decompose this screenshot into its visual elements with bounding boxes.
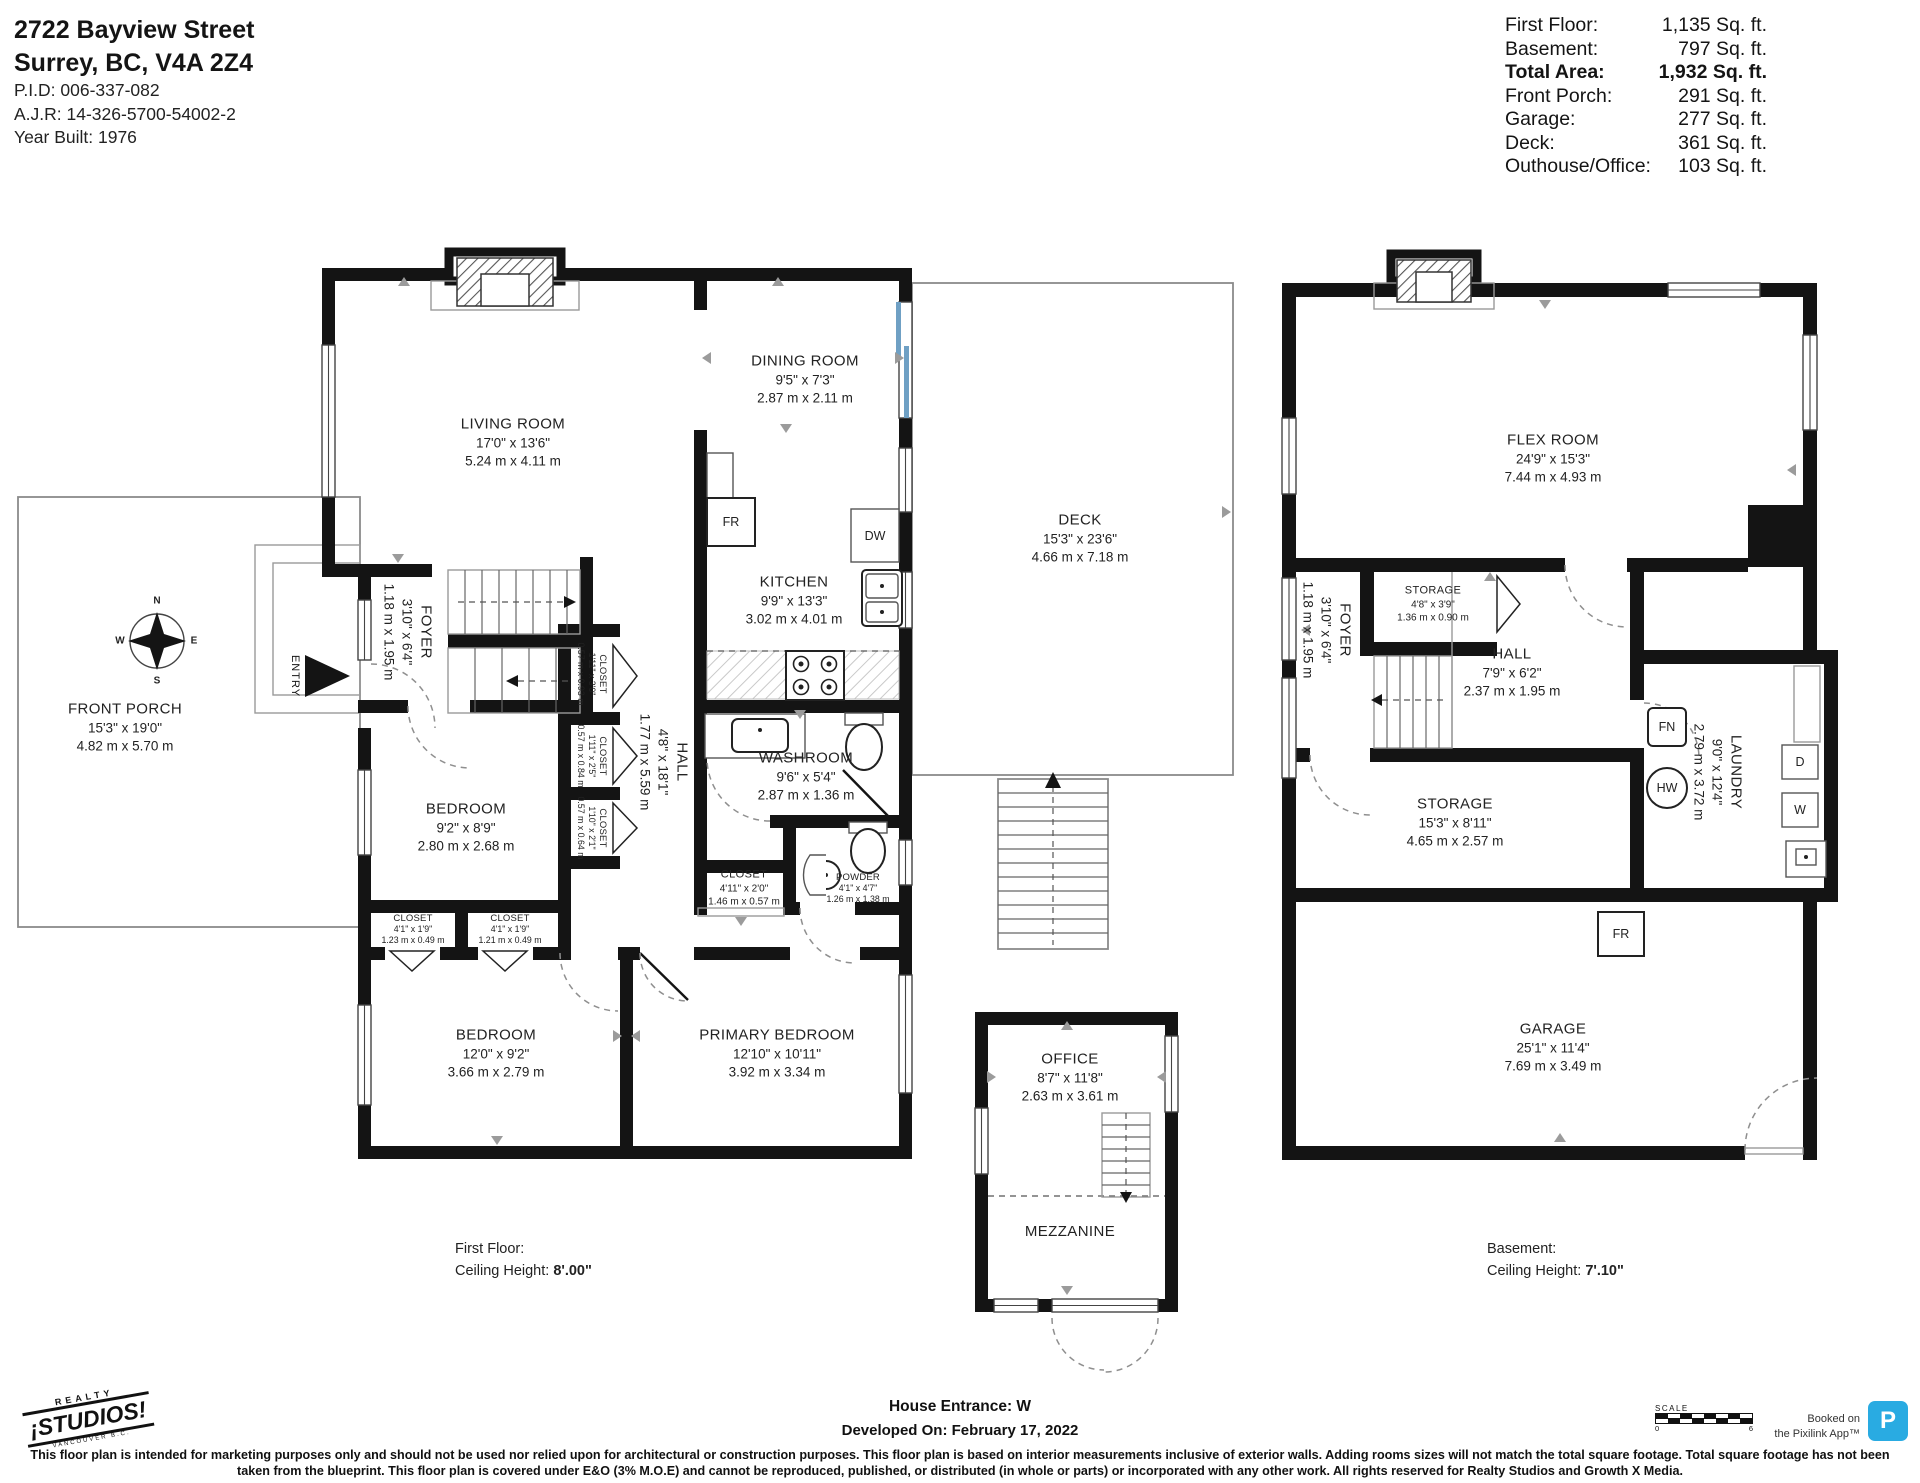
washer-label: W <box>1794 803 1806 817</box>
deck-outline <box>912 283 1233 949</box>
room-label-basement-foyer: FOYER 3'10" x 6'4" 1.18 m x 1.95 m <box>1299 582 1354 679</box>
header: 2722 Bayview Street Surrey, BC, V4A 2Z4 … <box>14 14 254 150</box>
year-built: Year Built: 1976 <box>14 126 254 150</box>
compass-s: S <box>154 676 161 687</box>
first-floor-note: First Floor: Ceiling Height: 8'.00" <box>455 1238 592 1283</box>
room-label-closet-e: CLOSET 4'1" x 1'9" 1.23 m x 0.49 m <box>381 913 444 945</box>
hot-water-label: HW <box>1657 781 1678 795</box>
area-row: Front Porch:291 Sq. ft. <box>1505 85 1767 109</box>
room-label-living-room: LIVING ROOM 17'0" x 13'6" 5.24 m x 4.11 … <box>461 414 565 469</box>
basement-note: Basement: Ceiling Height: 7'.10" <box>1487 1238 1624 1283</box>
ajr: A.J.R: 14-326-5700-54002-2 <box>14 103 254 127</box>
room-label-office: OFFICE 8'7" x 11'8" 2.63 m x 3.61 m <box>1022 1049 1119 1104</box>
room-label-bedroom2: BEDROOM 12'0" x 9'2" 3.66 m x 2.79 m <box>448 1025 545 1080</box>
pid: P.I.D: 006-337-082 <box>14 79 254 103</box>
floor-plan-drawing <box>0 0 1920 1483</box>
compass-icon <box>128 612 186 670</box>
room-label-primary-bedroom: PRIMARY BEDROOM 12'10" x 10'11" 3.92 m x… <box>699 1025 854 1080</box>
room-label-closet-c: CLOSET 1'10" x 2'1" 0.57 m x 0.64 m <box>576 796 608 859</box>
scale-bar: SCALE 0 6 <box>1655 1404 1755 1433</box>
bathroom-sink-icon <box>732 719 788 752</box>
room-label-closet-b: CLOSET 1'11" x 2'5" 0.57 m x 0.84 m <box>576 724 608 787</box>
fridge-label: FR <box>723 515 740 529</box>
room-label-kitchen: KITCHEN 9'9" x 13'3" 3.02 m x 4.01 m <box>746 572 843 627</box>
room-label-basement-storage1: STORAGE 4'8" x 3'9" 1.36 m x 0.90 m <box>1397 584 1469 625</box>
pixilink-logo: P <box>1868 1401 1908 1441</box>
floor-plan-page: 2722 Bayview Street Surrey, BC, V4A 2Z4 … <box>0 0 1920 1483</box>
house-entrance: House Entrance: W <box>889 1398 1031 1416</box>
room-label-dining-room: DINING ROOM 9'5" x 7'3" 2.87 m x 2.11 m <box>751 351 859 406</box>
furnace-label: FN <box>1659 720 1676 734</box>
area-table: First Floor:1,135 Sq. ft. Basement:797 S… <box>1505 14 1767 179</box>
area-row: Garage:277 Sq. ft. <box>1505 108 1767 132</box>
area-row-total: Total Area:1,932 Sq. ft. <box>1505 61 1767 85</box>
basement-chimney-icon <box>1374 254 1494 309</box>
room-label-powder: POWDER 4'1" x 4'7" 1.26 m x 1.38 m <box>826 872 889 904</box>
room-label-flex-room: FLEX ROOM 24'9" x 15'3" 7.44 m x 4.93 m <box>1505 430 1602 485</box>
kitchen-sink-icon <box>862 570 902 626</box>
compass-w: W <box>115 636 124 647</box>
room-label-basement-storage2: STORAGE 15'3" x 8'11" 4.65 m x 2.57 m <box>1407 794 1504 849</box>
area-row: First Floor:1,135 Sq. ft. <box>1505 14 1767 38</box>
room-label-mezzanine: MEZZANINE <box>1025 1222 1115 1242</box>
booked-on-text: Booked on the Pixilink App™ <box>1758 1412 1860 1442</box>
room-label-deck: DECK 15'3" x 23'6" 4.66 m x 7.18 m <box>1032 510 1129 565</box>
area-row: Deck:361 Sq. ft. <box>1505 132 1767 156</box>
basement-fridge-label: FR <box>1613 927 1630 941</box>
room-label-front-porch: FRONT PORCH 15'3" x 19'0" 4.82 m x 5.70 … <box>68 699 182 754</box>
room-label-laundry: LAUNDRY 9'0" x 12'4" 2.79 m x 3.72 m <box>1690 724 1745 821</box>
room-label-foyer: FOYER 3'10" x 6'4" 1.18 m x 1.95 m <box>380 584 435 681</box>
entry-arrow-icon <box>305 655 350 697</box>
disclaimer: This floor plan is intended for marketin… <box>15 1448 1905 1479</box>
address-line2: Surrey, BC, V4A 2Z4 <box>14 47 254 80</box>
address-line1: 2722 Bayview Street <box>14 14 254 47</box>
basement-windows <box>1282 283 1817 778</box>
compass-e: E <box>191 636 198 647</box>
dishwasher-label: DW <box>865 529 886 543</box>
room-label-garage: GARAGE 25'1" x 11'4" 7.69 m x 3.49 m <box>1505 1019 1602 1074</box>
fireplace-icon <box>431 252 579 310</box>
room-label-closet-f: CLOSET 4'1" x 1'9" 1.21 m x 0.49 m <box>478 913 541 945</box>
entry-label: ENTRY <box>289 655 301 697</box>
stove-icon <box>786 651 844 700</box>
compass-n: N <box>153 596 160 607</box>
laundry-sink-icon <box>1786 841 1826 877</box>
room-label-washroom: WASHROOM 9'6" x 5'4" 2.87 m x 1.36 m <box>758 748 855 803</box>
area-row: Basement:797 Sq. ft. <box>1505 38 1767 62</box>
room-label-hall: HALL 4'8" x 18'1" 1.77 m x 5.59 m <box>636 714 691 811</box>
room-label-closet-a: CLOSET 1'11" x 3'0" 0.57 m x 0.93 m <box>576 642 608 705</box>
room-label-basement-hall: HALL 7'9" x 6'2" 2.37 m x 1.95 m <box>1464 644 1561 699</box>
room-label-closet-d: CLOSET 4'11" x 2'0" 1.46 m x 0.57 m <box>708 868 780 909</box>
dryer-label: D <box>1795 755 1804 769</box>
toilet-icon <box>849 822 887 873</box>
developed-on: Developed On: February 17, 2022 <box>842 1422 1079 1439</box>
outbuilding-stairs <box>1102 1113 1150 1203</box>
room-label-bedroom1: BEDROOM 9'2" x 8'9" 2.80 m x 2.68 m <box>418 799 515 854</box>
area-row: Outhouse/Office:103 Sq. ft. <box>1505 155 1767 179</box>
